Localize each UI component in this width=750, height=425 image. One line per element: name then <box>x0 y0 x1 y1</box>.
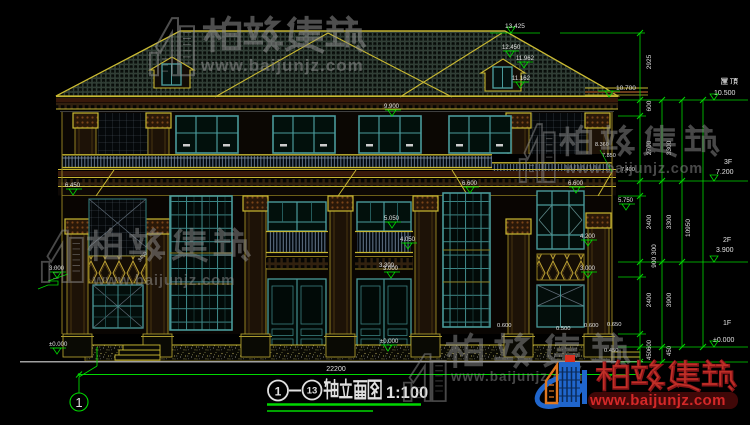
svg-text:3.900: 3.900 <box>716 247 734 254</box>
svg-text:1F: 1F <box>723 320 731 327</box>
svg-text:1: 1 <box>275 385 282 399</box>
svg-text:13.425: 13.425 <box>505 23 525 30</box>
svg-text:600: 600 <box>646 100 653 111</box>
svg-text:10950: 10950 <box>685 219 692 237</box>
svg-text:5.750: 5.750 <box>618 198 634 204</box>
svg-text:11.962: 11.962 <box>516 56 535 62</box>
svg-text:6.600: 6.600 <box>568 181 584 187</box>
svg-text:www.baijunjz.com: www.baijunjz.com <box>200 56 364 75</box>
svg-text:10.700: 10.700 <box>616 85 636 92</box>
svg-text:2400: 2400 <box>646 214 653 229</box>
svg-text:6.450: 6.450 <box>65 183 81 189</box>
svg-text:6.600: 6.600 <box>462 181 478 187</box>
svg-text:1: 1 <box>75 395 82 410</box>
svg-text:0.600: 0.600 <box>497 323 512 329</box>
svg-text:12.450: 12.450 <box>502 45 521 51</box>
svg-text:7.200: 7.200 <box>716 169 734 176</box>
svg-text:22200: 22200 <box>326 366 346 373</box>
svg-text:1:100: 1:100 <box>386 384 428 402</box>
svg-text:5.050: 5.050 <box>384 216 400 222</box>
svg-text:11.162: 11.162 <box>512 76 531 82</box>
svg-text:3F: 3F <box>724 159 732 166</box>
svg-text:9.900: 9.900 <box>384 104 400 110</box>
svg-text:www.baijunjz.com: www.baijunjz.com <box>92 272 235 289</box>
svg-text:±0.000: ±0.000 <box>380 339 399 345</box>
svg-text:3.000: 3.000 <box>383 266 399 272</box>
svg-text:10.500: 10.500 <box>714 90 736 97</box>
svg-text:2400: 2400 <box>646 292 653 307</box>
svg-text:4.050: 4.050 <box>400 237 416 243</box>
svg-text:0.500: 0.500 <box>556 326 571 332</box>
svg-text:450600: 450600 <box>647 339 653 360</box>
svg-text:13: 13 <box>307 386 318 397</box>
svg-text:4.200: 4.200 <box>580 234 596 240</box>
svg-text:3300: 3300 <box>666 214 673 229</box>
svg-text:±0.000: ±0.000 <box>49 342 68 348</box>
svg-text:450: 450 <box>667 345 673 356</box>
svg-text:0.650: 0.650 <box>607 322 622 328</box>
svg-text:2925: 2925 <box>646 54 653 69</box>
svg-text:900 300: 900 300 <box>651 244 658 268</box>
svg-text:www.baijunjz.com: www.baijunjz.com <box>564 161 703 177</box>
svg-text:3.000: 3.000 <box>580 266 596 272</box>
svg-text:www.baijunjz.com: www.baijunjz.com <box>589 392 726 409</box>
svg-text:2F: 2F <box>723 237 731 244</box>
svg-text:0.600: 0.600 <box>584 323 599 329</box>
svg-text:3900: 3900 <box>666 292 673 307</box>
